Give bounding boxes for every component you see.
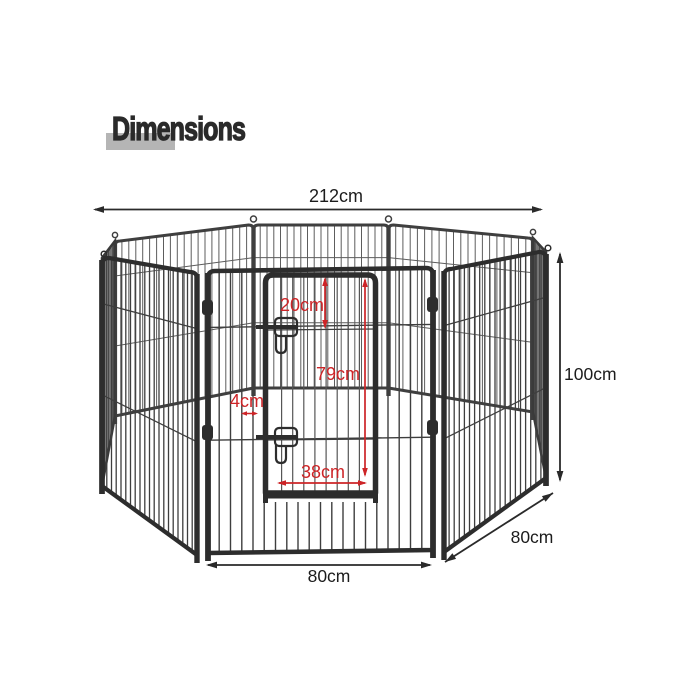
svg-text:80cm: 80cm bbox=[511, 527, 554, 547]
svg-text:100cm: 100cm bbox=[564, 364, 617, 384]
svg-text:212cm: 212cm bbox=[309, 186, 363, 206]
svg-text:20cm: 20cm bbox=[280, 295, 324, 315]
svg-text:4cm: 4cm bbox=[230, 391, 264, 411]
svg-text:79cm: 79cm bbox=[316, 364, 360, 384]
svg-text:80cm: 80cm bbox=[308, 566, 351, 586]
svg-text:38cm: 38cm bbox=[301, 462, 345, 482]
